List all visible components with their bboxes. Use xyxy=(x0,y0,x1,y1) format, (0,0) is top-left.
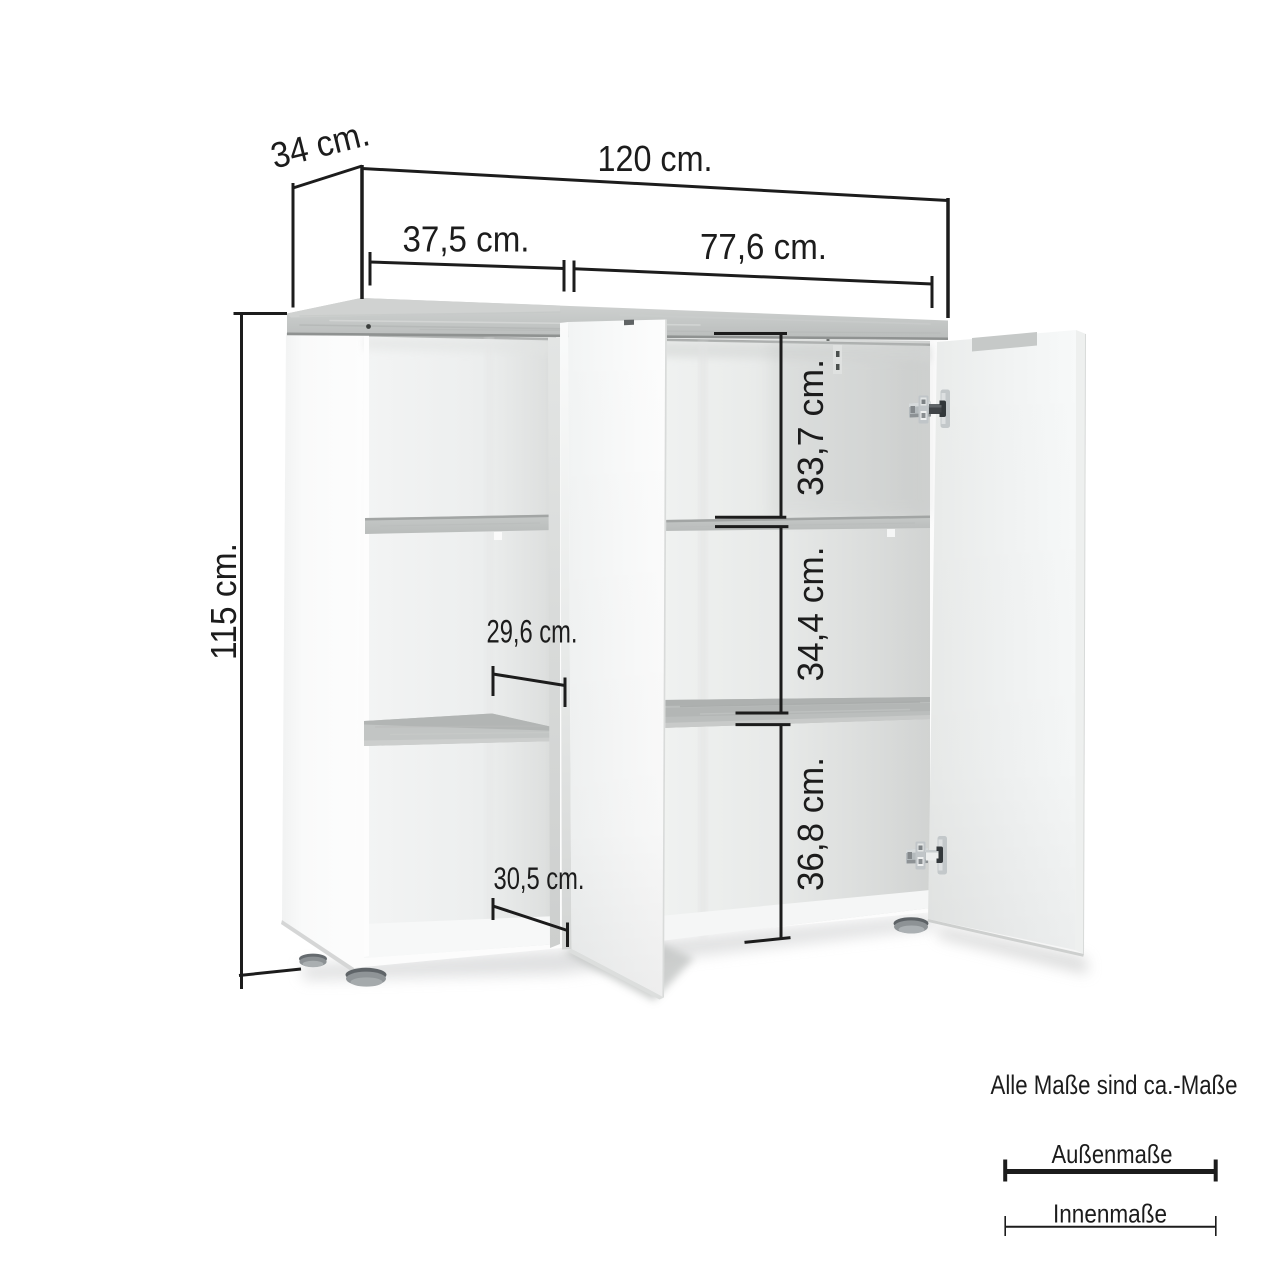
svg-text:29,6 cm.: 29,6 cm. xyxy=(487,614,578,650)
svg-text:Alle Maße sind ca.-Maße: Alle Maße sind ca.-Maße xyxy=(991,1070,1238,1100)
svg-text:33,7 cm.: 33,7 cm. xyxy=(790,359,831,496)
svg-text:115 cm.: 115 cm. xyxy=(203,543,244,660)
svg-text:Innenmaße: Innenmaße xyxy=(1053,1199,1167,1229)
svg-text:34,4 cm.: 34,4 cm. xyxy=(790,547,831,682)
svg-text:120 cm.: 120 cm. xyxy=(598,138,713,179)
svg-text:Außenmaße: Außenmaße xyxy=(1052,1139,1173,1169)
svg-text:77,6 cm.: 77,6 cm. xyxy=(700,226,827,267)
svg-text:36,8 cm.: 36,8 cm. xyxy=(790,757,831,891)
svg-text:30,5 cm.: 30,5 cm. xyxy=(494,860,585,896)
svg-text:37,5 cm.: 37,5 cm. xyxy=(403,219,530,260)
